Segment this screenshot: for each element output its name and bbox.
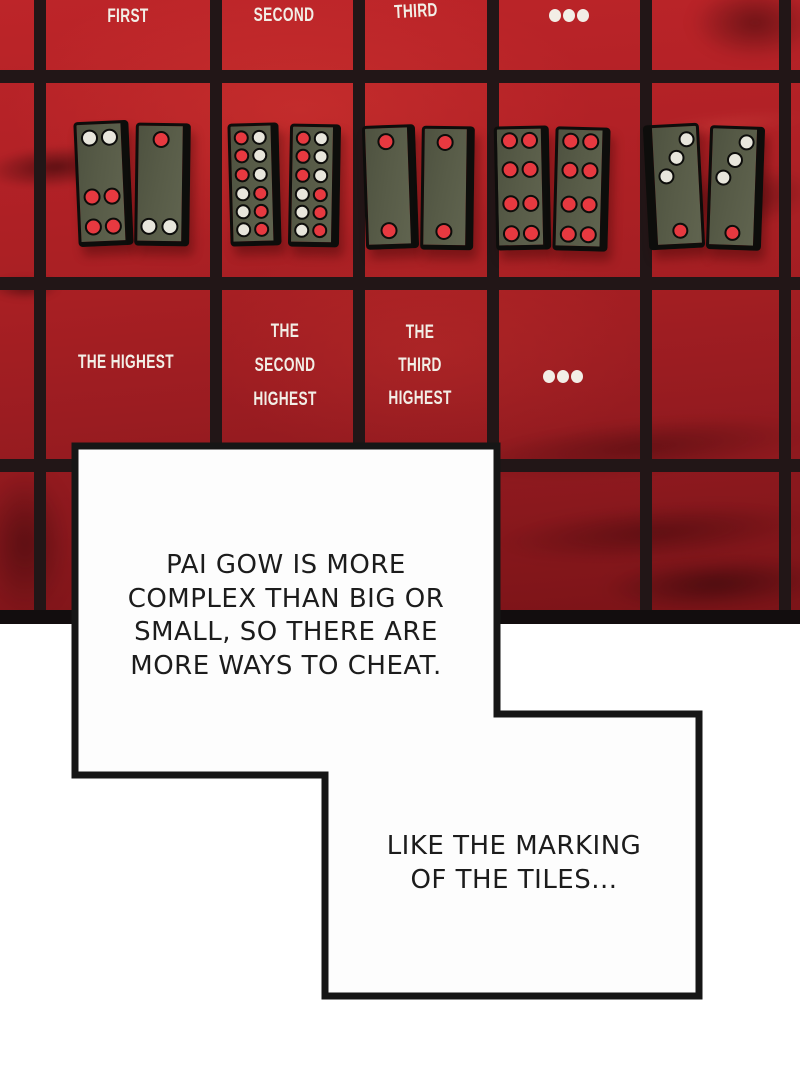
bubble-text-line: LIKE THE MARKING <box>324 830 704 864</box>
ellipsis-dot <box>557 370 569 383</box>
white-pip <box>738 134 755 151</box>
bubble-text-line: SMALL, SO THERE ARE <box>90 616 482 650</box>
label-line: THE <box>348 316 492 349</box>
white-pip <box>715 169 732 186</box>
red-pip <box>560 195 577 212</box>
grid-vertical-line <box>34 0 46 624</box>
red-pip <box>234 130 249 145</box>
tile-1-1 <box>420 126 475 251</box>
white-pip <box>236 222 251 237</box>
red-pip <box>254 204 269 219</box>
white-pip <box>252 130 267 145</box>
red-pip <box>313 187 328 202</box>
white-pip <box>294 223 309 238</box>
red-pip <box>562 132 579 149</box>
label-line: THE HIGHEST <box>54 353 198 373</box>
white-pip <box>313 149 328 164</box>
red-pip <box>83 188 101 206</box>
tile-1-2 <box>134 123 191 247</box>
red-pip <box>582 133 599 150</box>
red-pip <box>501 161 518 178</box>
bubble-text-line: PAI GOW IS MORE <box>90 549 482 583</box>
white-pip <box>658 168 675 185</box>
white-pip <box>678 131 695 148</box>
red-pip <box>295 168 310 183</box>
grid-vertical-line <box>779 0 791 624</box>
red-pip <box>296 131 311 146</box>
red-pip <box>580 196 597 213</box>
red-pip <box>435 223 452 240</box>
tile-1-1 <box>362 124 419 250</box>
red-pip <box>254 222 269 237</box>
label-line: HIGHEST <box>348 382 492 415</box>
grid-vertical-line <box>353 0 365 624</box>
grid-vertical-line <box>640 0 652 624</box>
bubble-text-line: OF THE TILES... <box>324 864 704 898</box>
red-pip <box>380 222 398 240</box>
red-pip <box>560 225 577 242</box>
white-pip <box>295 187 310 202</box>
red-pip <box>437 134 454 151</box>
ellipsis-dot <box>577 9 589 22</box>
white-pip <box>727 152 744 169</box>
red-pip <box>581 162 598 179</box>
grid-vertical-line <box>487 0 499 624</box>
shading-streak <box>599 552 800 616</box>
white-pip <box>252 148 267 163</box>
pai-gow-pair-ranking-table: FIRSTSECONDTHIRD THE HIGHESTTHESECONDHIG… <box>0 0 800 624</box>
ellipsis-dot <box>563 9 575 22</box>
tile-4-4 <box>494 125 552 250</box>
bubble-text-line: COMPLEX THAN BIG OR <box>90 583 482 617</box>
white-pip <box>294 205 309 220</box>
red-pip <box>153 131 170 148</box>
red-pip <box>561 161 578 178</box>
red-pip <box>253 186 268 201</box>
red-pip <box>377 133 395 151</box>
red-pip <box>105 217 123 235</box>
grid-horizontal-line <box>0 277 800 290</box>
grid-horizontal-line <box>0 459 800 472</box>
red-pip <box>522 195 539 212</box>
red-pip <box>724 225 741 242</box>
rank-description-label: THETHIRDHIGHEST <box>320 316 520 415</box>
tile-6-6 <box>288 124 341 248</box>
tile-4-4 <box>552 126 610 251</box>
label-line: THIRD <box>348 349 492 382</box>
white-pip <box>140 218 157 235</box>
label-line: FIRST <box>56 7 200 27</box>
shading-streak <box>458 404 800 490</box>
ellipsis-dot <box>571 370 583 383</box>
comic-page: FIRSTSECONDTHIRD THE HIGHESTTHESECONDHIG… <box>0 0 800 1067</box>
white-pip <box>236 204 251 219</box>
red-pip <box>523 225 540 242</box>
red-pip <box>103 187 121 205</box>
red-pip <box>234 148 249 163</box>
white-pip <box>668 149 685 166</box>
red-pip <box>580 226 597 243</box>
tile-2-4 <box>73 120 133 247</box>
white-pip <box>81 129 99 147</box>
red-pip <box>521 161 538 178</box>
red-pip <box>502 195 519 212</box>
red-pip <box>501 132 518 149</box>
speech-bubble-2-text: LIKE THE MARKINGOF THE TILES... <box>324 830 704 897</box>
red-pip <box>503 225 520 242</box>
rank-description-ellipsis-dots <box>543 370 583 383</box>
red-pip <box>312 205 327 220</box>
white-pip <box>101 128 119 146</box>
red-pip <box>312 223 327 238</box>
white-pip <box>161 218 178 235</box>
bubble-text-line: MORE WAYS TO CHEAT. <box>90 650 482 684</box>
rank-order-ellipsis-dots <box>549 9 589 22</box>
white-pip <box>314 131 329 146</box>
tile-1-3 <box>643 123 705 251</box>
red-pip <box>521 132 538 149</box>
red-pip <box>295 149 310 164</box>
white-pip <box>235 186 250 201</box>
tile-1-3 <box>706 125 765 251</box>
white-pip <box>253 167 268 182</box>
ellipsis-dot <box>549 9 561 22</box>
red-pip <box>85 218 103 236</box>
label-line: THIRD <box>344 0 489 26</box>
speech-bubble-1-text: PAI GOW IS MORECOMPLEX THAN BIG ORSMALL,… <box>90 549 482 683</box>
grid-horizontal-line <box>0 70 800 83</box>
white-pip <box>313 168 328 183</box>
red-pip <box>235 167 250 182</box>
ellipsis-dot <box>543 370 555 383</box>
red-pip <box>672 222 689 239</box>
tile-6-6 <box>227 122 281 246</box>
grid-vertical-line <box>210 0 222 624</box>
